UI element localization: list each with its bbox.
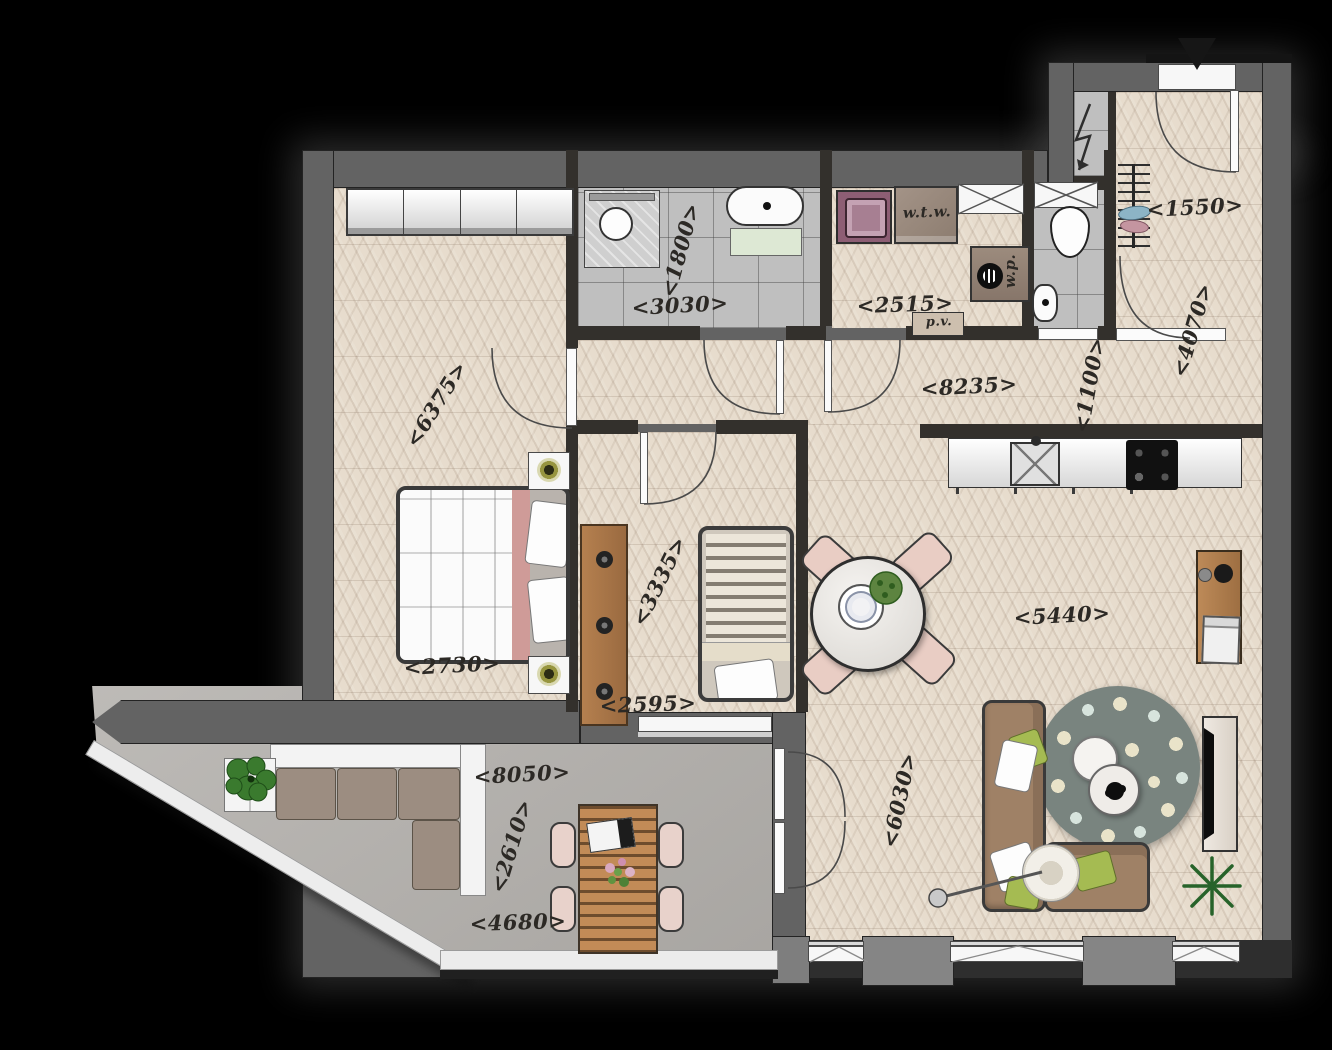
wardrobe-door [461, 190, 517, 234]
dresser-knob [596, 551, 613, 568]
kitchen-counter [948, 438, 1242, 488]
faucet-icon [763, 202, 771, 210]
utility-door [824, 340, 832, 412]
entrance-door [1230, 90, 1239, 172]
washbasin [726, 186, 804, 226]
tv-screen [1204, 728, 1214, 840]
wall-terrace-top [92, 700, 580, 744]
terrace-planter [224, 758, 276, 812]
bedroom2-terrace-window [638, 716, 772, 732]
wardrobe-door [517, 190, 572, 234]
wall-hall-top-1 [566, 326, 700, 340]
kitchen-sink [1010, 442, 1060, 486]
wardrobe [346, 188, 574, 236]
wall-bathroom-utility [820, 150, 832, 326]
desk-lamp-base [1198, 568, 1212, 582]
french-door-lower [774, 822, 785, 894]
terrace-sofa-frame-top [270, 744, 486, 768]
dresser-knob [596, 683, 613, 700]
faucet-icon [1031, 436, 1041, 446]
shower-head-icon [599, 207, 633, 241]
nightstand-top [528, 452, 570, 490]
terrace-sofa-cushion [276, 768, 336, 820]
wardrobe-door [348, 190, 404, 234]
vent-shaft-utility [958, 184, 1024, 214]
single-bed-pillow [713, 658, 778, 702]
shower [584, 190, 660, 268]
terrace-table [578, 804, 658, 954]
wall-top [302, 150, 1048, 188]
window-1 [808, 946, 864, 962]
entry-hall-door [1116, 328, 1226, 341]
shower-rail [589, 193, 655, 201]
wall-entrance-left [1048, 62, 1074, 188]
faucet-icon [1042, 299, 1049, 306]
wardrobe-door [404, 190, 460, 234]
laptop [1201, 615, 1241, 664]
entrance-top-bar [1146, 54, 1292, 63]
washbasin-cabinet [730, 228, 802, 256]
vent-shaft-toilet [1034, 182, 1098, 208]
meter-cupboard-floor [1074, 92, 1108, 176]
dresser-knob [596, 617, 613, 634]
terrace-railing-bottom-edge [440, 970, 778, 979]
floor-plan: <6375><2730><1800><3030><2515>w.t.w.w.p.… [0, 0, 1332, 1050]
pv-box [912, 312, 964, 336]
wtw-unit [894, 186, 958, 244]
kitchen-hob [1126, 440, 1178, 490]
toilet-door [1038, 328, 1098, 340]
window-2 [950, 946, 1084, 962]
terrace-sofa-cushion [398, 768, 460, 820]
washing-machine [836, 190, 892, 244]
single-bed [698, 526, 794, 702]
heatpump-icon [977, 263, 1003, 289]
bedroom-door [566, 348, 577, 426]
bed-pillow-2 [527, 576, 570, 644]
terrace-chair [658, 886, 684, 932]
desk [1196, 550, 1242, 664]
toilet-basin [1032, 284, 1058, 322]
double-bed [396, 486, 570, 664]
terrace-chair [550, 822, 576, 868]
wall-hall-bottom-2 [716, 420, 808, 434]
wall-hall-top-2 [786, 326, 826, 340]
terrace-chair [658, 822, 684, 868]
wall-left [302, 150, 334, 712]
wall-hall-top-4 [1098, 326, 1116, 340]
floor-lamp-shade [1022, 844, 1080, 902]
terrace-chair [550, 886, 576, 932]
pier-bottom-2 [1082, 936, 1176, 986]
wp-unit [970, 246, 1030, 302]
coat-pink [1119, 219, 1149, 235]
single-bed-blanket [706, 534, 786, 642]
bed-duvet [400, 490, 512, 660]
wall-kitchen-back [920, 424, 1262, 438]
dresser [580, 524, 628, 726]
desk-lamp-icon [1214, 564, 1233, 583]
pier-bottom-1 [862, 936, 954, 986]
nightstand-bottom [528, 656, 570, 694]
bed-blanket-pink [512, 490, 530, 660]
hall-floor [566, 340, 1262, 424]
bed-pillow-1 [524, 500, 570, 569]
bedroom2-door [640, 432, 648, 504]
bedroom2-window-sill [638, 732, 772, 737]
wall-bedroom-bathroom [566, 150, 578, 332]
terrace-sofa-frame-right [460, 744, 486, 896]
dining-plate [838, 584, 884, 630]
teapot-icon [1106, 782, 1124, 800]
terrace-sofa-corner-cushion [412, 820, 460, 890]
window-3 [1172, 946, 1240, 962]
lamp [537, 458, 561, 482]
wall-meter-right [1108, 92, 1116, 176]
french-door-upper [774, 748, 785, 820]
heatpump-waves [983, 269, 997, 283]
washer-drum [845, 198, 887, 238]
bathroom-door [776, 340, 784, 414]
single-bed-cream-band [702, 642, 790, 661]
terrace-sofa-cushion [337, 768, 397, 820]
coffee-table-large [1088, 764, 1140, 816]
magazine [586, 817, 636, 853]
lamp [537, 662, 561, 686]
wall-right [1262, 62, 1292, 978]
coat-rack [1118, 164, 1150, 248]
